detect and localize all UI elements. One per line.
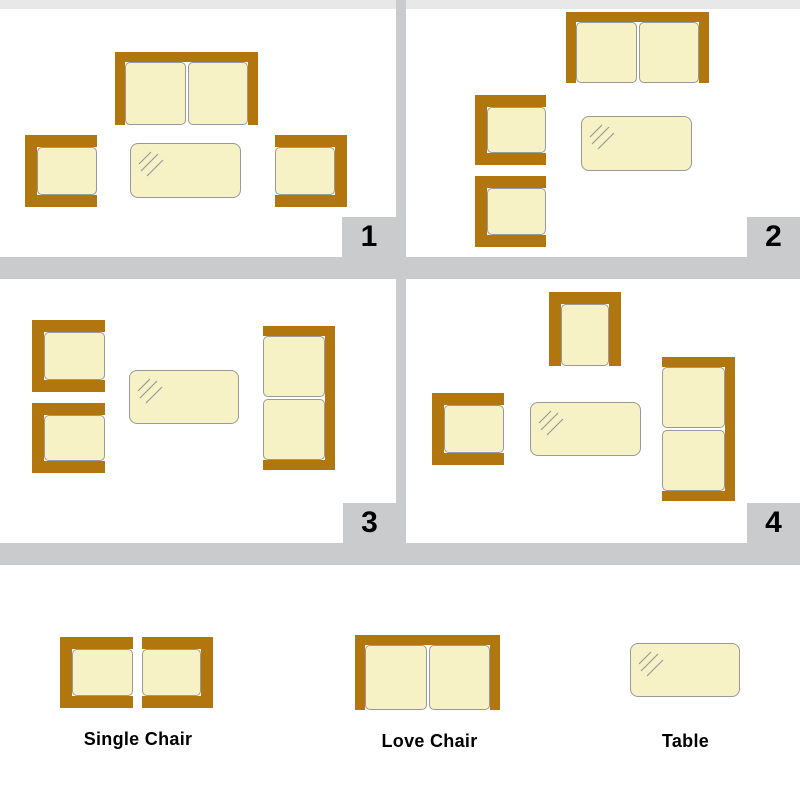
single-chair-icon <box>32 403 105 473</box>
single-chair-icon <box>25 135 97 207</box>
table-shine-icon <box>587 122 617 152</box>
chair-cushion <box>44 415 105 461</box>
table-icon <box>530 402 641 456</box>
chair-cushion <box>142 649 201 696</box>
seat-area <box>487 107 546 153</box>
table-shine-icon <box>136 149 166 179</box>
love-chair-icon <box>566 12 709 83</box>
chair-cushion <box>263 336 325 397</box>
seat-area <box>561 304 609 366</box>
table-icon <box>581 116 692 171</box>
legend-label-single-chair: Single Chair <box>38 729 238 750</box>
seat-area <box>487 188 546 235</box>
horizontal-divider-top <box>0 257 800 279</box>
seat-area <box>72 649 133 696</box>
chair-cushion <box>487 188 546 235</box>
chair-cushion <box>429 645 491 710</box>
seat-area <box>142 649 201 696</box>
seat-area <box>444 405 504 453</box>
seat-area <box>275 147 335 195</box>
seat-area <box>44 332 105 380</box>
seat-area <box>365 645 490 710</box>
chair-cushion <box>365 645 427 710</box>
table-shine-icon <box>536 408 566 438</box>
chair-cushion <box>662 430 725 491</box>
single-chair-icon <box>475 176 546 247</box>
single-chair-icon <box>549 292 621 366</box>
chair-cushion <box>188 62 249 125</box>
chair-cushion <box>576 22 637 83</box>
single-chair-icon <box>432 393 504 465</box>
chair-cushion <box>72 649 133 696</box>
legend-label-love-chair: Love Chair <box>352 731 507 752</box>
seat-area <box>37 147 97 195</box>
section-label-3: 3 <box>343 503 396 543</box>
seat-area <box>576 22 699 83</box>
section-number: 1 <box>361 220 378 254</box>
horizontal-divider-bottom <box>0 543 800 565</box>
legend-label-table: Table <box>628 731 743 752</box>
chair-cushion <box>639 22 700 83</box>
section-label-2: 2 <box>747 217 800 257</box>
chair-cushion <box>37 147 97 195</box>
seat-area <box>125 62 248 125</box>
chair-cushion <box>444 405 504 453</box>
vertical-divider <box>396 0 406 565</box>
chair-cushion <box>275 147 335 195</box>
section-number: 2 <box>765 220 782 254</box>
single-chair-icon <box>60 637 133 708</box>
table-icon <box>129 370 239 424</box>
section-label-1: 1 <box>342 217 396 257</box>
table-shine-icon <box>135 376 165 406</box>
love-chair-icon <box>662 357 735 501</box>
single-chair-icon <box>32 320 105 392</box>
love-chair-icon <box>115 52 258 125</box>
single-chair-icon <box>475 95 546 165</box>
chair-cushion <box>125 62 186 125</box>
table-icon <box>630 643 740 697</box>
table-icon <box>130 143 241 198</box>
chair-cushion <box>662 367 725 428</box>
seat-area <box>662 367 725 491</box>
seat-area <box>44 415 105 461</box>
love-chair-icon <box>355 635 500 710</box>
table-shine-icon <box>636 649 666 679</box>
chair-cushion <box>561 304 609 366</box>
chair-cushion <box>487 107 546 153</box>
single-chair-icon <box>142 637 213 708</box>
furniture-layout-diagram: 1 2 3 4 Single Chair Love Chair Table <box>0 0 800 800</box>
love-chair-icon <box>263 326 335 470</box>
seat-area <box>263 336 325 460</box>
section-number: 3 <box>361 506 378 540</box>
section-number: 4 <box>765 506 782 540</box>
chair-cushion <box>263 399 325 460</box>
section-label-4: 4 <box>747 503 800 543</box>
chair-cushion <box>44 332 105 380</box>
single-chair-icon <box>275 135 347 207</box>
